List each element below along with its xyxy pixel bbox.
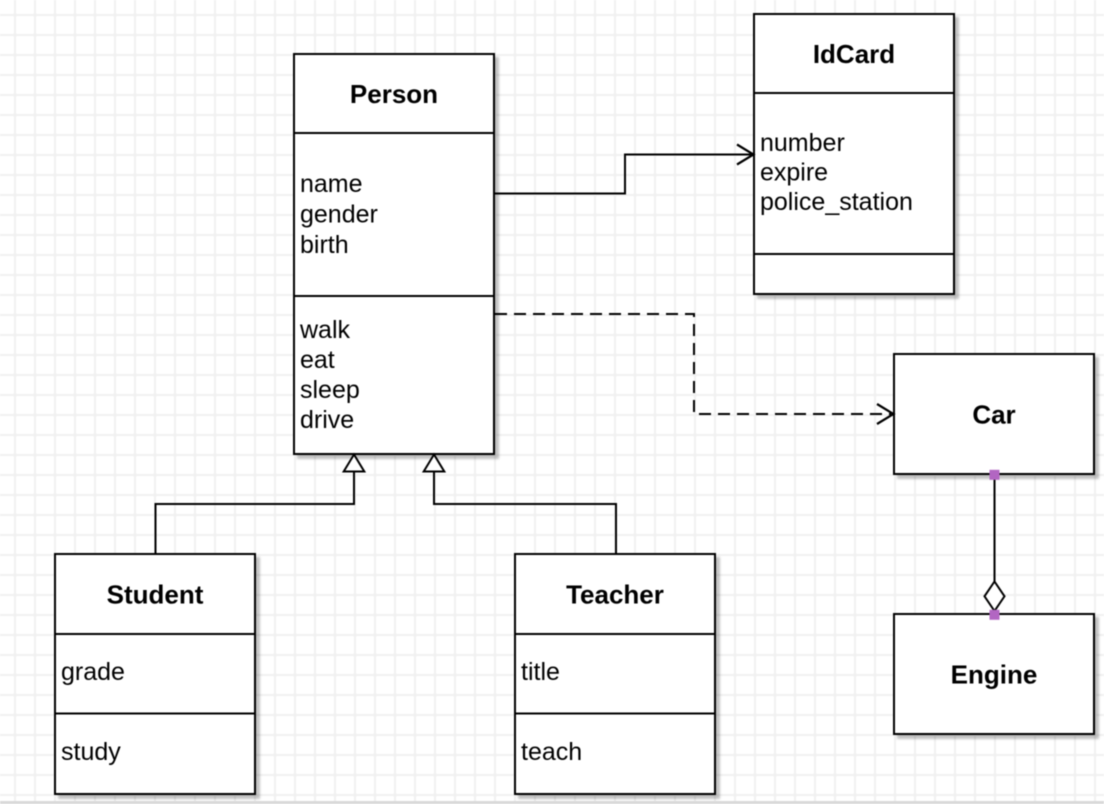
svg-text:grade: grade — [61, 658, 125, 686]
svg-text:walk: walk — [299, 316, 351, 344]
svg-text:eat: eat — [300, 346, 335, 374]
svg-text:drive: drive — [300, 406, 354, 434]
svg-text:police_station: police_station — [760, 188, 913, 216]
svg-text:expire: expire — [760, 159, 828, 187]
svg-text:Student: Student — [107, 579, 204, 609]
svg-text:birth: birth — [300, 231, 349, 259]
svg-text:Person: Person — [350, 79, 438, 109]
svg-text:IdCard: IdCard — [813, 39, 895, 69]
svg-text:Engine: Engine — [951, 659, 1038, 689]
svg-text:Car: Car — [972, 399, 1015, 429]
svg-text:teach: teach — [521, 738, 582, 766]
svg-text:title: title — [521, 658, 560, 686]
svg-text:Teacher: Teacher — [566, 579, 664, 609]
svg-text:name: name — [300, 170, 363, 198]
svg-text:study: study — [61, 738, 121, 766]
svg-text:sleep: sleep — [300, 376, 360, 404]
svg-text:gender: gender — [300, 201, 378, 229]
svg-text:number: number — [760, 129, 845, 157]
